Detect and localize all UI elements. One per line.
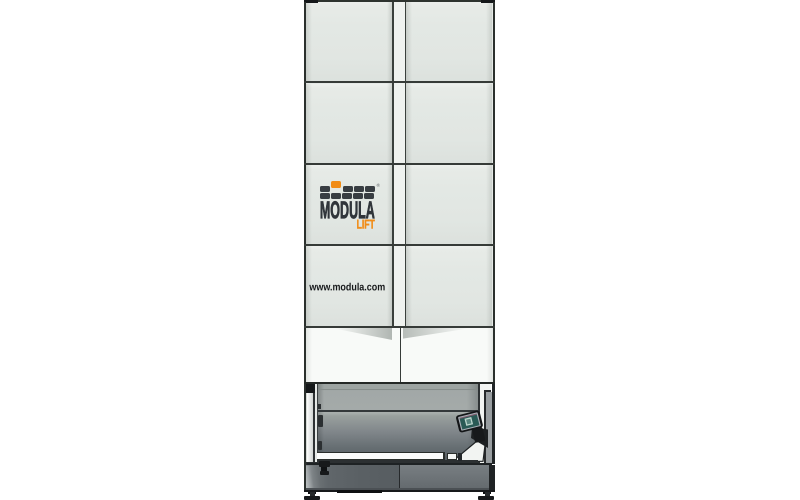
svg-text:LIFT: LIFT	[357, 218, 375, 232]
svg-text:www.modula.com: www.modula.com	[309, 281, 386, 293]
